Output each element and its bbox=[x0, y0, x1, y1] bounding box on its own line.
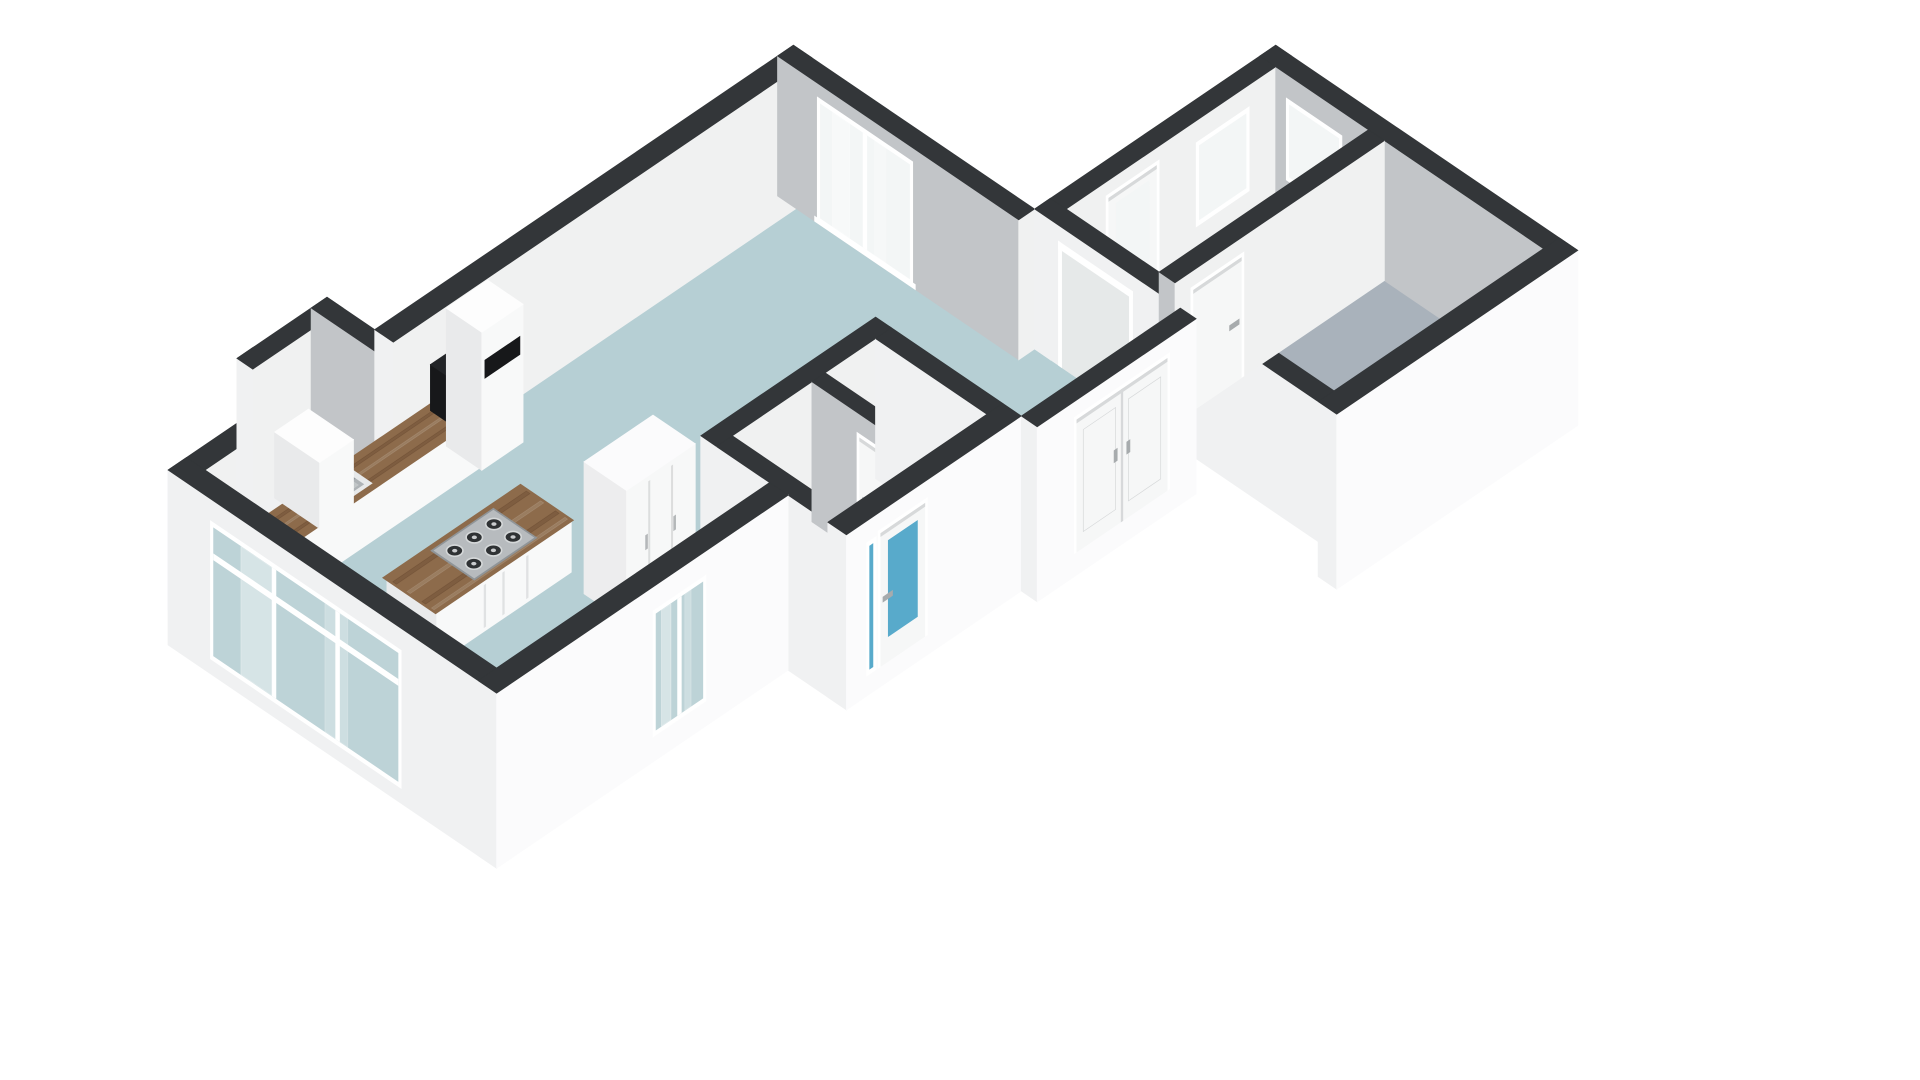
floorplan-viewport bbox=[0, 0, 1920, 1080]
wall-bedroom-se-face-w bbox=[1318, 402, 1337, 590]
wardrobe-handle bbox=[674, 515, 676, 530]
kitchen-tall-cabinet bbox=[446, 280, 523, 470]
wall-living-ne-face-s bbox=[1019, 209, 1035, 360]
floorplan-3d-render bbox=[0, 0, 1920, 1080]
wall-bath-se-face-w bbox=[828, 522, 847, 710]
wall-niche-north-face-w bbox=[237, 358, 253, 509]
wall-entry-se-face-w bbox=[1021, 416, 1037, 602]
walls-and-fixtures-layer bbox=[168, 45, 1578, 868]
wall-sw-face-w bbox=[478, 681, 497, 869]
wardrobe-handle bbox=[646, 534, 648, 549]
bathroom-sidelight bbox=[867, 537, 877, 677]
